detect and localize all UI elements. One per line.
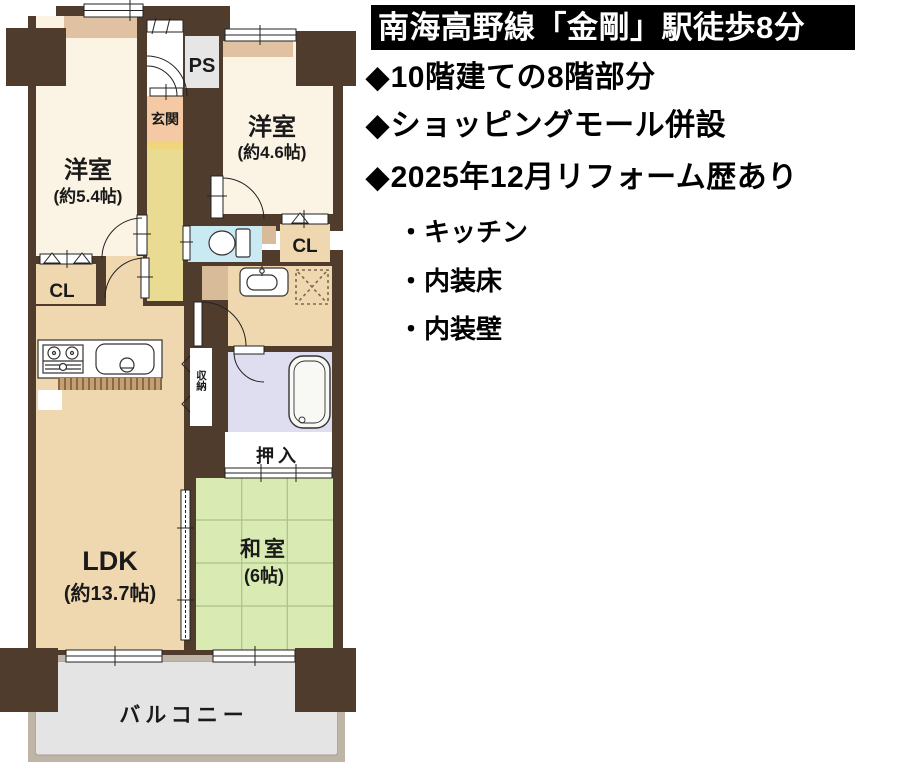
room-label-closet-left: CL [49, 281, 75, 302]
renovation-item: ・内装床 [398, 261, 502, 298]
station-access-banner: 南海高野線「金剛」駅徒歩8分 [371, 5, 855, 50]
room-label-western2: 洋室 [248, 113, 296, 141]
dot-bullet-icon: ・ [398, 314, 424, 344]
western1-window-ledge [64, 16, 137, 38]
renovation-item: ・内装壁 [398, 309, 502, 346]
room-label-ps: PS [189, 55, 216, 77]
room-size-western1: (約5.4帖) [54, 186, 123, 206]
kitchen-niche [38, 390, 62, 410]
dot-bullet-icon: ・ [398, 217, 424, 247]
feature-line: ◆ショッピングモール併設 [366, 100, 726, 144]
renovation-item-text: 内装床 [424, 266, 502, 296]
washbasin-icon [240, 266, 288, 296]
feature-text: 2025年12月リフォーム歴あり [391, 161, 798, 194]
room-label-closet-right: CL [292, 236, 318, 257]
washroom-counter [202, 266, 228, 300]
renovation-item-text: キッチン [424, 217, 528, 247]
room-label-ldk: LDK [82, 546, 138, 576]
hall-floor [147, 149, 183, 301]
japanese-room-floor [196, 478, 333, 650]
entry-door-area [147, 32, 183, 96]
western2-window-ledge [223, 41, 293, 57]
room-label-entrance: 玄関 [151, 111, 179, 127]
feature-text: ショッピングモール併設 [391, 109, 727, 142]
room-size-western2: (約4.6帖) [238, 142, 307, 162]
bathtub-icon [289, 356, 330, 428]
room-label-oshiire: 押入 [256, 445, 300, 466]
renovation-item: ・キッチン [398, 212, 528, 249]
room-size-japanese: (6帖) [244, 565, 284, 586]
toilet-icon [209, 229, 250, 257]
feature-line: ◆2025年12月リフォーム歴あり [366, 152, 798, 196]
entrance-step [147, 142, 183, 149]
dot-bullet-icon: ・ [398, 266, 424, 296]
room-label-storage: 収納 [195, 370, 207, 392]
room-label-balcony: バルコニー [119, 704, 249, 727]
renovation-item-text: 内装壁 [424, 314, 502, 344]
floor-plan: 洋室 (約5.4帖) 洋室 (約4.6帖) PS 玄関 CL CL 収納 LDK… [0, 0, 375, 768]
room-label-western1: 洋室 [64, 156, 112, 184]
room-size-ldk: (約13.7帖) [64, 581, 156, 605]
toilet-counter [262, 226, 276, 244]
sink-icon [96, 344, 154, 374]
room-label-japanese: 和室 [240, 537, 288, 561]
feature-text: 10階建ての8階部分 [391, 61, 656, 94]
listing-floorplan-image: 洋室 (約5.4帖) 洋室 (約4.6帖) PS 玄関 CL CL 収納 LDK… [0, 0, 910, 768]
feature-line: ◆10階建ての8階部分 [366, 52, 656, 96]
stove-icon [43, 345, 83, 373]
